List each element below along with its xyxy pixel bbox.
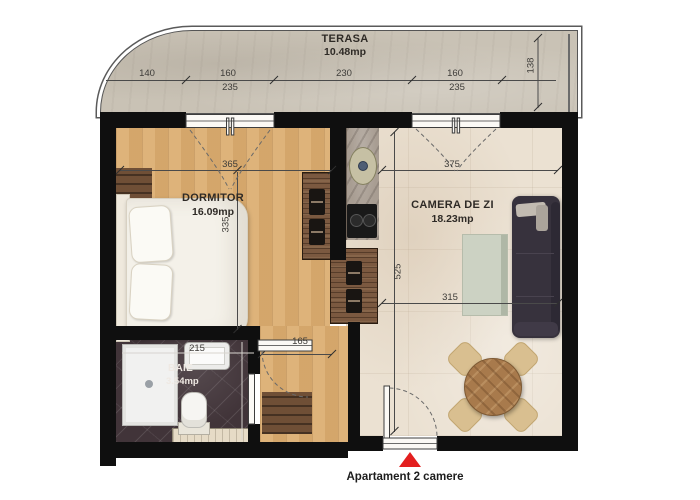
entry-mat: [262, 392, 312, 434]
living-room-area: 18.23mp: [395, 213, 510, 225]
shower-drain: [145, 380, 153, 388]
dim-terrace-230: 230: [324, 68, 364, 79]
cooktop: [347, 204, 377, 238]
wall-bathroom-right: [248, 340, 260, 374]
sofa: [512, 196, 560, 338]
dim-hall-165: 165: [282, 336, 318, 347]
dim-terrace-138: 138: [526, 48, 537, 84]
sofa-seat-line: [516, 253, 554, 254]
wall-hall-living: [348, 322, 360, 436]
dining-table: [464, 358, 522, 416]
dim-terrace-140: 140: [127, 68, 167, 79]
wardrobe: [302, 172, 332, 260]
dim-living-375: 375: [432, 159, 472, 170]
dim-terrace-235: 235: [210, 82, 250, 93]
wall-bedroom-kitchen: [330, 128, 346, 260]
location-marker-icon: [399, 452, 421, 467]
bathroom-area: 3.54mp: [166, 376, 220, 387]
terrace-name: TERASA: [300, 33, 390, 45]
burner: [350, 214, 363, 227]
wall-bottom: [100, 442, 348, 458]
bedroom-area: 16.09mp: [165, 206, 261, 218]
wall-bedroom-bathroom: [116, 326, 260, 340]
apartment-caption: Apartament 2 camere: [305, 471, 505, 483]
dim-bedroom-335: 335: [221, 205, 232, 245]
wall-bathroom-right: [248, 424, 260, 442]
bed-pillow: [129, 263, 174, 321]
terrace-railing-line: [568, 34, 570, 112]
floor-plan: TERASA 10.48mp DORMITOR 16.09mp CAMERA D…: [0, 0, 700, 500]
dim-bedroom-365: 365: [210, 159, 250, 170]
rug: [462, 234, 508, 316]
wall-bottom: [348, 436, 383, 451]
wall-left: [100, 112, 116, 466]
wall-top: [274, 112, 412, 128]
wall-bottom: [437, 436, 578, 451]
toilet: [181, 392, 207, 428]
dim-living-315: 315: [430, 292, 470, 303]
living-room-name: CAMERA DE ZI: [395, 199, 510, 211]
dim-terrace-160b: 160: [435, 68, 475, 79]
sofa-armrest: [514, 322, 558, 336]
dim-bath-215: 215: [180, 343, 214, 354]
bathroom-name: BAIE: [168, 363, 218, 374]
sofa-pillow: [536, 205, 548, 231]
sofa-seat-line: [516, 296, 554, 297]
terrace-area: 10.48mp: [300, 46, 390, 58]
dim-living-525: 525: [393, 252, 404, 292]
bedroom-name: DORMITOR: [165, 192, 261, 204]
burner: [363, 214, 376, 227]
wall-right: [562, 112, 578, 450]
sofa-backrest: [551, 202, 560, 332]
dim-terrace-235b: 235: [437, 82, 477, 93]
sink-drain: [358, 161, 368, 171]
dim-terrace-160: 160: [208, 68, 248, 79]
